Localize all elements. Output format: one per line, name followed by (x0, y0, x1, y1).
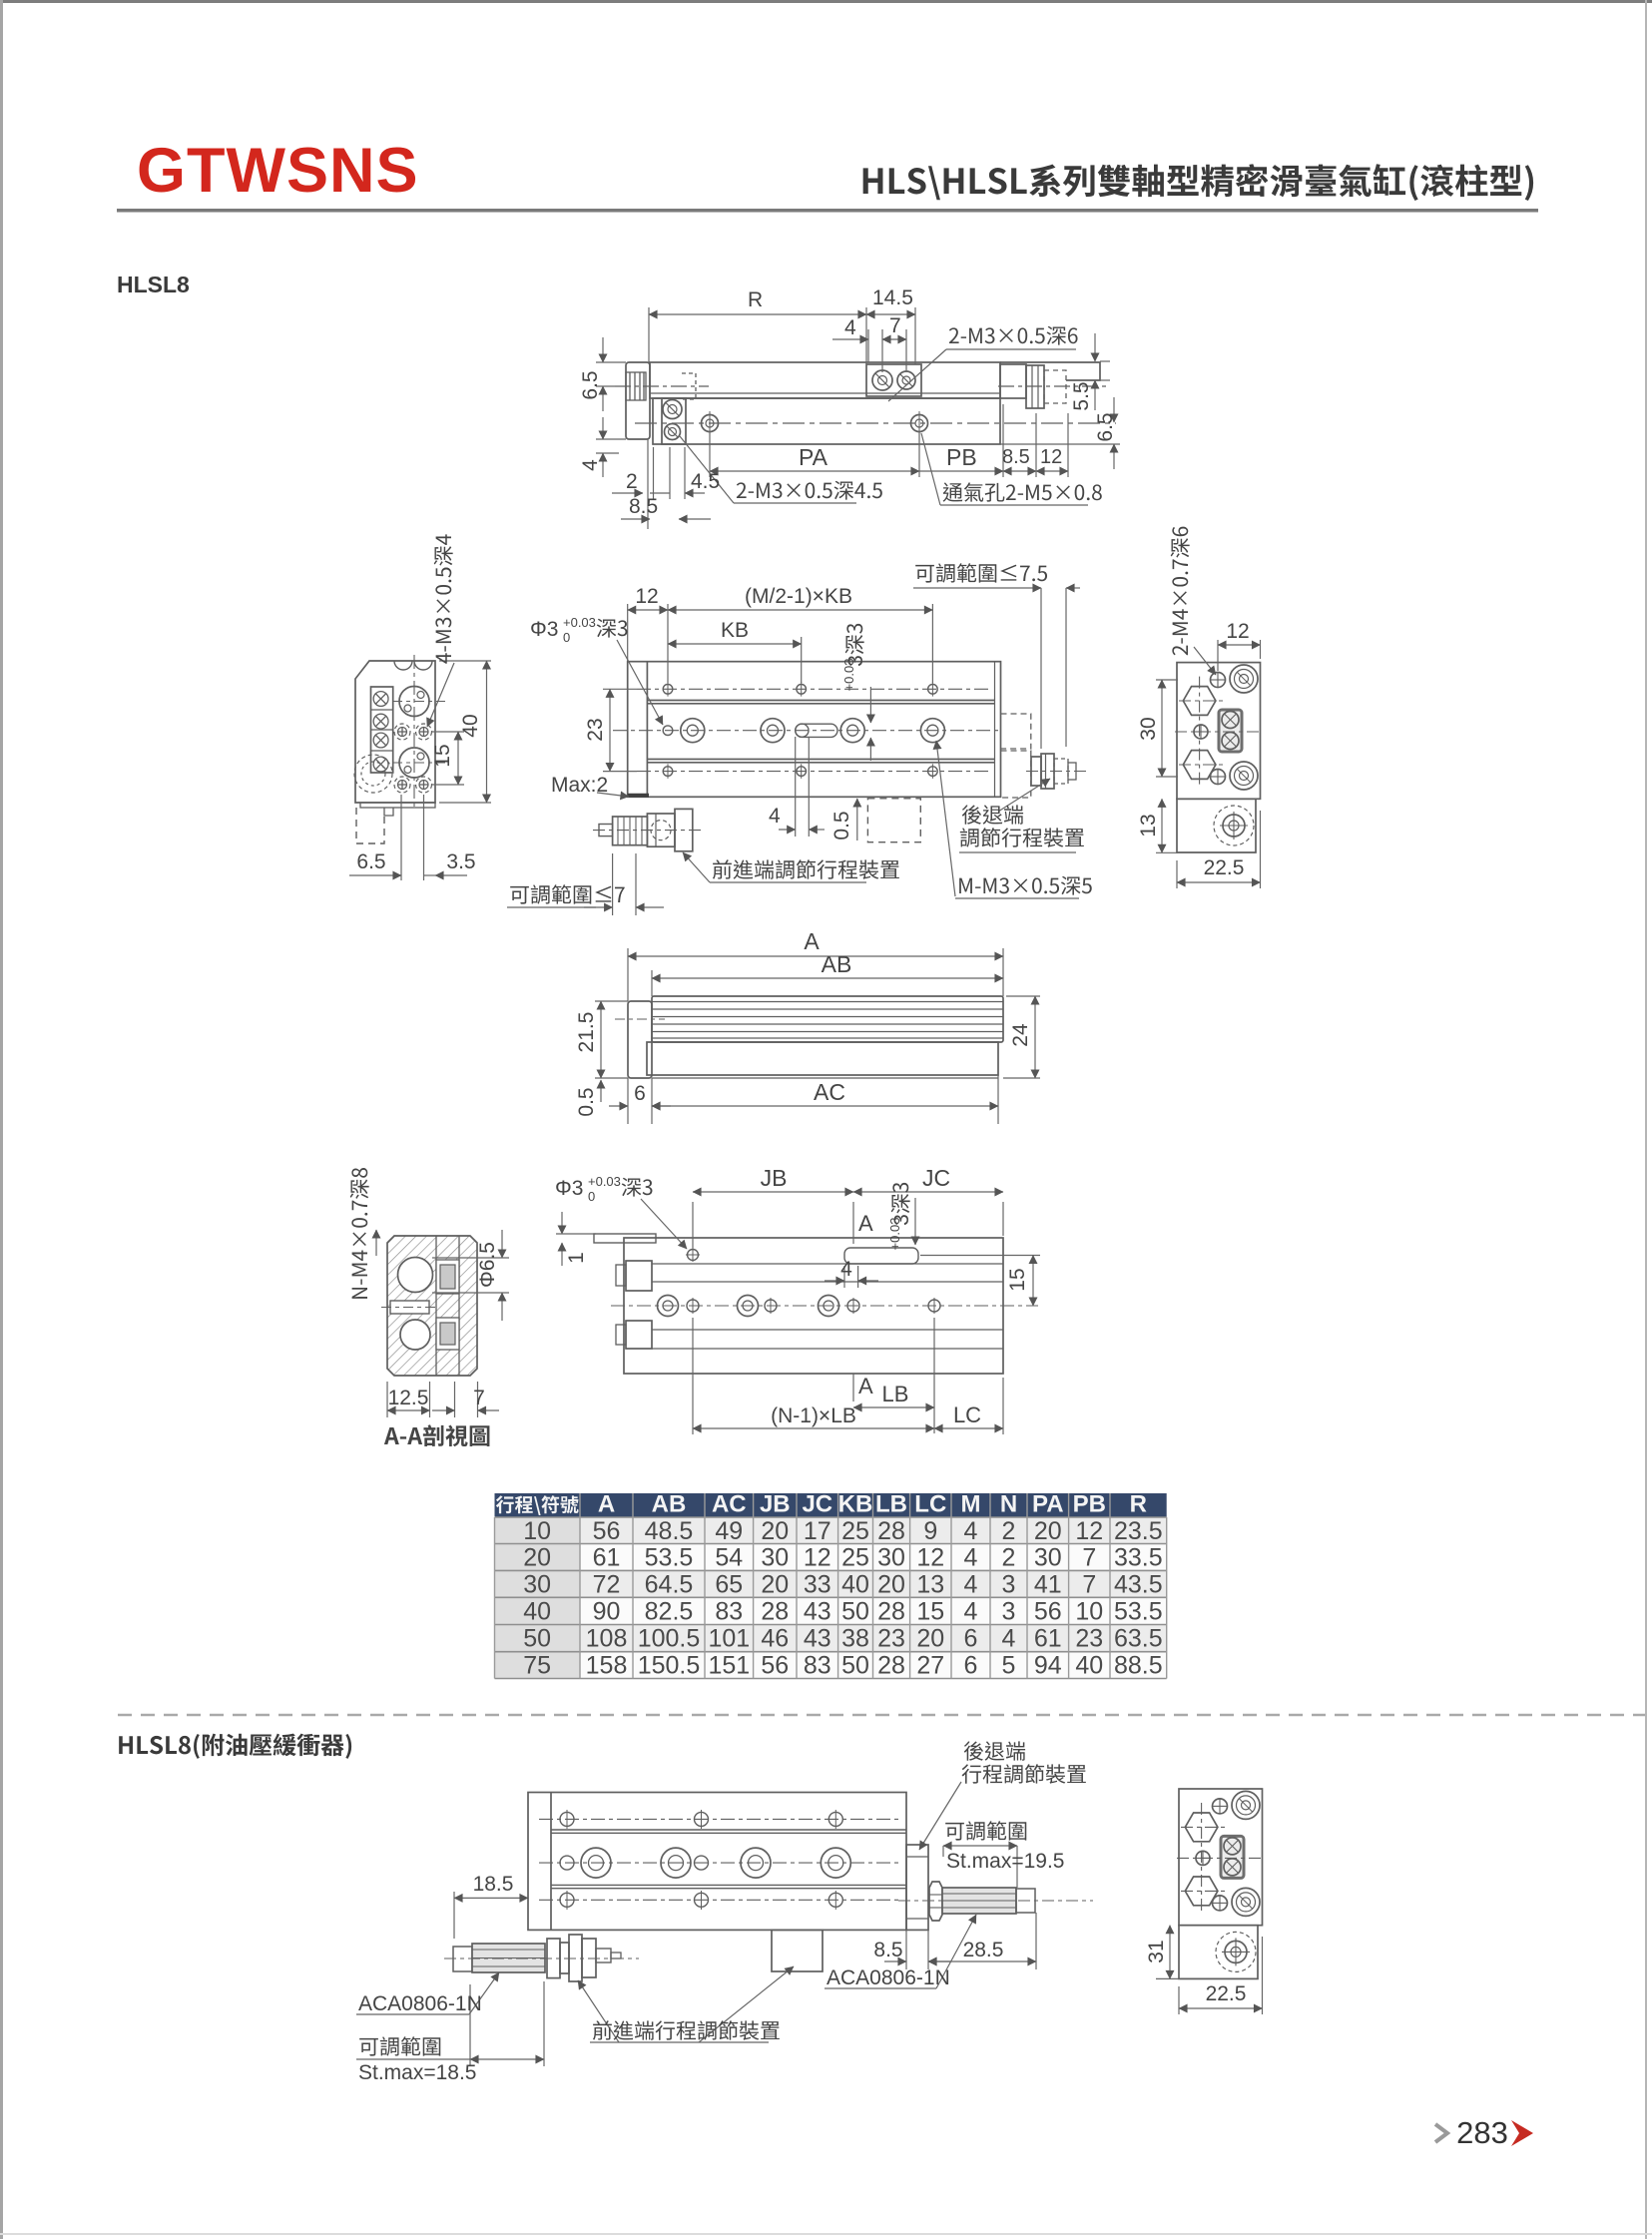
svg-text:28: 28 (877, 1517, 905, 1545)
svg-text:12: 12 (916, 1544, 944, 1572)
svg-text:1: 1 (565, 1252, 588, 1264)
svg-text:6: 6 (964, 1652, 978, 1680)
svg-text:33.5: 33.5 (1114, 1544, 1163, 1572)
svg-text:108: 108 (586, 1625, 628, 1653)
svg-text:23: 23 (1075, 1625, 1103, 1653)
svg-text:0.5: 0.5 (575, 1087, 598, 1116)
svg-text:PB: PB (946, 444, 977, 470)
svg-text:4: 4 (964, 1597, 978, 1625)
svg-text:65: 65 (715, 1570, 743, 1598)
svg-text:Φ3: Φ3 (555, 1177, 583, 1200)
svg-text:75: 75 (523, 1652, 551, 1680)
svg-text:53.5: 53.5 (1114, 1597, 1163, 1625)
svg-text:8.5: 8.5 (629, 495, 658, 518)
svg-text:10: 10 (1075, 1597, 1103, 1625)
svg-text:88.5: 88.5 (1114, 1652, 1163, 1680)
svg-text:40: 40 (459, 714, 482, 737)
svg-text:JC: JC (922, 1165, 950, 1191)
svg-text:72: 72 (593, 1570, 621, 1598)
svg-text:20: 20 (877, 1570, 905, 1598)
svg-text:A: A (804, 928, 820, 954)
svg-text:12.5: 12.5 (388, 1387, 429, 1409)
svg-text:4: 4 (844, 316, 856, 339)
svg-text:30: 30 (1034, 1544, 1062, 1572)
svg-text:20: 20 (761, 1517, 789, 1545)
svg-text:Max:2: Max:2 (551, 774, 608, 797)
svg-text:23.5: 23.5 (1114, 1517, 1163, 1545)
svg-text:6: 6 (964, 1625, 978, 1653)
svg-text:50: 50 (841, 1652, 869, 1680)
svg-text:2: 2 (1002, 1517, 1016, 1545)
svg-text:0: 0 (588, 1189, 595, 1204)
svg-text:7: 7 (889, 314, 901, 337)
svg-text:33: 33 (804, 1570, 831, 1598)
svg-text:4: 4 (964, 1544, 978, 1572)
svg-text:2: 2 (626, 470, 638, 493)
svg-text:15: 15 (916, 1597, 944, 1625)
svg-text:100.5: 100.5 (638, 1625, 701, 1653)
svg-text:AC: AC (814, 1079, 845, 1105)
svg-text:12: 12 (635, 585, 658, 608)
svg-text:St.max=18.5: St.max=18.5 (358, 2061, 476, 2084)
svg-text:23: 23 (584, 718, 607, 741)
svg-text:Φ6.5: Φ6.5 (476, 1242, 499, 1288)
svg-text:56: 56 (761, 1652, 789, 1680)
svg-text:13: 13 (916, 1570, 944, 1598)
svg-text:22.5: 22.5 (1204, 856, 1245, 879)
svg-text:2: 2 (1002, 1544, 1016, 1572)
svg-text:12: 12 (1075, 1517, 1103, 1545)
svg-text:JC: JC (802, 1491, 832, 1518)
svg-text:158: 158 (586, 1652, 628, 1680)
svg-text:+0.03: +0.03 (841, 659, 856, 692)
svg-text:5: 5 (1002, 1652, 1016, 1680)
svg-text:AC: AC (712, 1491, 747, 1518)
svg-text:6: 6 (634, 1082, 646, 1105)
svg-text:25: 25 (841, 1544, 869, 1572)
svg-text:LB: LB (882, 1382, 909, 1406)
svg-text:90: 90 (593, 1597, 621, 1625)
svg-text:JB: JB (761, 1165, 788, 1191)
svg-text:6.5: 6.5 (1094, 412, 1117, 441)
svg-text:+0.03: +0.03 (887, 1218, 902, 1251)
svg-text:3: 3 (1002, 1597, 1016, 1625)
svg-text:4.5: 4.5 (691, 470, 720, 493)
svg-text:53.5: 53.5 (645, 1544, 694, 1572)
svg-text:61: 61 (1034, 1625, 1062, 1653)
svg-text:20: 20 (1034, 1517, 1062, 1545)
svg-text:15: 15 (431, 744, 454, 767)
svg-text:AB: AB (822, 951, 852, 977)
svg-text:12: 12 (804, 1544, 831, 1572)
svg-text:43: 43 (804, 1625, 831, 1653)
svg-text:JB: JB (760, 1491, 791, 1518)
svg-text:14.5: 14.5 (872, 286, 913, 309)
svg-text:30: 30 (877, 1544, 905, 1572)
svg-text:PA: PA (1032, 1491, 1064, 1518)
svg-text:A: A (598, 1491, 615, 1518)
svg-text:0: 0 (563, 630, 570, 645)
svg-text:49: 49 (715, 1517, 743, 1545)
svg-text:38: 38 (841, 1625, 869, 1653)
svg-text:30: 30 (1137, 717, 1160, 740)
svg-text:4: 4 (840, 1258, 852, 1281)
svg-text:23: 23 (877, 1625, 905, 1653)
svg-text:54: 54 (715, 1544, 743, 1572)
svg-text:ACA0806-1N: ACA0806-1N (358, 1992, 482, 2015)
svg-text:24: 24 (1009, 1023, 1032, 1047)
svg-text:21.5: 21.5 (575, 1012, 598, 1053)
svg-text:ACA0806-1N: ACA0806-1N (826, 1966, 950, 1989)
svg-text:3.5: 3.5 (446, 850, 475, 873)
svg-text:40: 40 (1075, 1652, 1103, 1680)
svg-text:N: N (1000, 1491, 1017, 1518)
svg-text:R: R (1130, 1491, 1147, 1518)
svg-text:HLSL8: HLSL8 (117, 272, 190, 297)
svg-text:15: 15 (1006, 1268, 1029, 1291)
svg-text:5.5: 5.5 (1070, 381, 1093, 410)
svg-text:56: 56 (1034, 1597, 1062, 1625)
svg-text:4: 4 (964, 1570, 978, 1598)
svg-text:+0.03: +0.03 (588, 1174, 621, 1189)
svg-text:94: 94 (1034, 1652, 1062, 1680)
svg-text:27: 27 (916, 1652, 944, 1680)
svg-text:4: 4 (579, 459, 602, 471)
svg-text:KB: KB (721, 619, 749, 642)
svg-text:8.5: 8.5 (1002, 446, 1030, 468)
svg-text:PA: PA (799, 444, 828, 470)
svg-text:13: 13 (1137, 814, 1160, 837)
svg-text:10: 10 (523, 1517, 551, 1545)
svg-text:AB: AB (652, 1491, 687, 1518)
svg-text:7: 7 (473, 1387, 485, 1409)
svg-text:12: 12 (1040, 446, 1062, 468)
svg-text:18.5: 18.5 (473, 1873, 514, 1896)
svg-text:151: 151 (708, 1652, 750, 1680)
svg-text:43.5: 43.5 (1114, 1570, 1163, 1598)
svg-text:LC: LC (953, 1402, 981, 1427)
svg-text:20: 20 (523, 1544, 551, 1572)
svg-text:4: 4 (964, 1517, 978, 1545)
svg-text:22.5: 22.5 (1206, 1982, 1247, 2005)
svg-text:8.5: 8.5 (873, 1939, 902, 1961)
svg-text:20: 20 (916, 1625, 944, 1653)
svg-text:Φ3: Φ3 (530, 618, 558, 641)
svg-text:83: 83 (715, 1597, 743, 1625)
svg-text:63.5: 63.5 (1114, 1625, 1163, 1653)
svg-text:150.5: 150.5 (638, 1652, 701, 1680)
svg-text:25: 25 (841, 1517, 869, 1545)
svg-text:A: A (858, 1211, 873, 1236)
svg-text:M: M (961, 1491, 981, 1518)
svg-text:50: 50 (523, 1625, 551, 1653)
svg-text:(M/2-1)×KB: (M/2-1)×KB (745, 585, 852, 608)
svg-text:+0.03: +0.03 (563, 615, 596, 630)
svg-text:(N-1)×LB: (N-1)×LB (771, 1404, 856, 1427)
svg-text:56: 56 (593, 1517, 621, 1545)
svg-text:40: 40 (841, 1570, 869, 1598)
svg-text:31: 31 (1145, 1940, 1168, 1962)
svg-text:41: 41 (1034, 1570, 1062, 1598)
svg-text:64.5: 64.5 (645, 1570, 694, 1598)
svg-text:6.5: 6.5 (356, 850, 385, 873)
svg-text:7: 7 (1082, 1570, 1096, 1598)
svg-text:A: A (858, 1374, 873, 1399)
svg-text:LB: LB (875, 1491, 907, 1518)
svg-text:PB: PB (1073, 1491, 1106, 1518)
svg-text:28: 28 (761, 1597, 789, 1625)
svg-text:46: 46 (761, 1625, 789, 1653)
svg-text:61: 61 (593, 1544, 621, 1572)
svg-text:3: 3 (1002, 1570, 1016, 1598)
svg-text:30: 30 (523, 1570, 551, 1598)
svg-text:283: 283 (1456, 2115, 1508, 2150)
svg-text:9: 9 (923, 1517, 937, 1545)
svg-text:GTWSNS: GTWSNS (137, 136, 419, 206)
svg-text:28: 28 (877, 1652, 905, 1680)
svg-text:17: 17 (804, 1517, 831, 1545)
svg-text:40: 40 (523, 1597, 551, 1625)
svg-text:28.5: 28.5 (963, 1939, 1004, 1961)
svg-text:101: 101 (708, 1625, 750, 1653)
svg-text:6.5: 6.5 (579, 370, 602, 399)
svg-text:28: 28 (877, 1597, 905, 1625)
svg-text:0.5: 0.5 (830, 811, 853, 840)
svg-text:82.5: 82.5 (645, 1597, 694, 1625)
svg-text:50: 50 (841, 1597, 869, 1625)
svg-text:7: 7 (1082, 1544, 1096, 1572)
svg-text:48.5: 48.5 (645, 1517, 694, 1545)
svg-text:12: 12 (1226, 620, 1249, 643)
svg-text:St.max=19.5: St.max=19.5 (946, 1850, 1064, 1873)
svg-text:4: 4 (1002, 1625, 1016, 1653)
svg-text:R: R (748, 288, 763, 311)
svg-text:4: 4 (769, 805, 781, 828)
svg-text:LC: LC (914, 1491, 946, 1518)
svg-text:20: 20 (761, 1570, 789, 1598)
svg-text:KB: KB (838, 1491, 873, 1518)
svg-text:83: 83 (804, 1652, 831, 1680)
svg-text:43: 43 (804, 1597, 831, 1625)
svg-text:30: 30 (761, 1544, 789, 1572)
